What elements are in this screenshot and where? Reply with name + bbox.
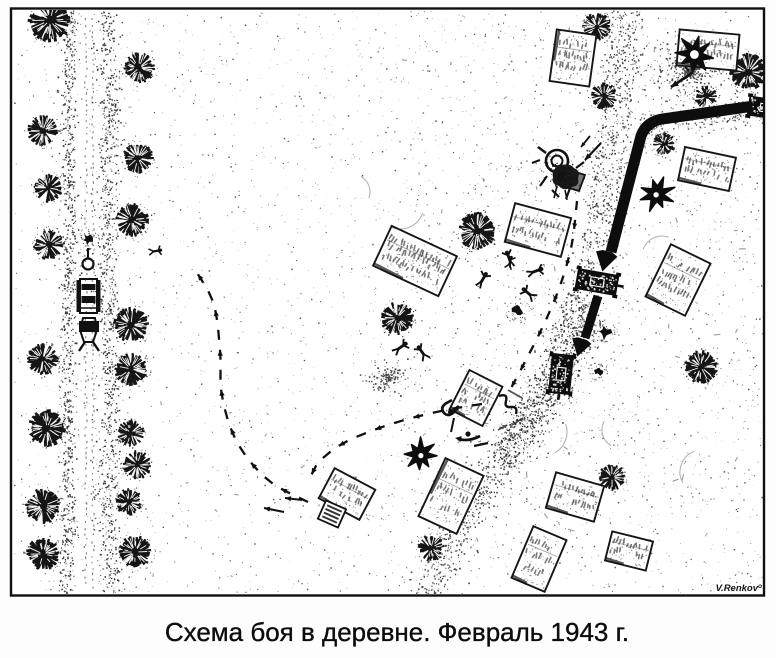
svg-text:Схема боя в деревне. Февраль 1: Схема боя в деревне. Февраль 1943 г. bbox=[165, 617, 629, 647]
svg-text:V.Renkovo: V.Renkovo bbox=[716, 583, 762, 594]
